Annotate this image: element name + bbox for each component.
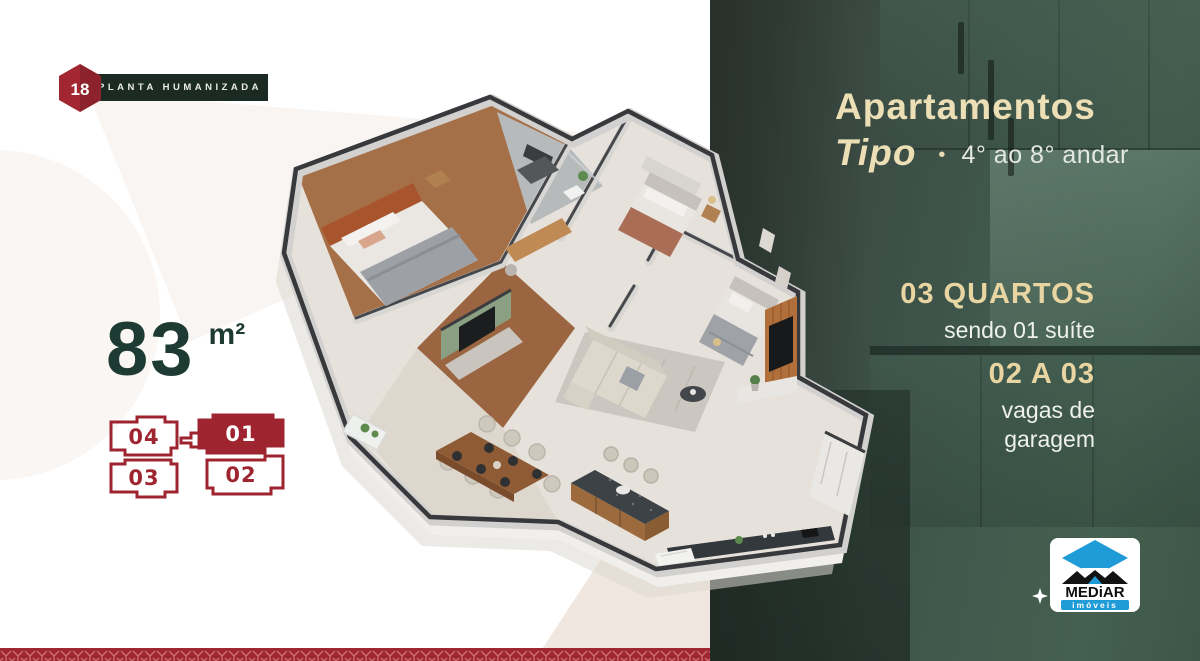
feature-bedrooms-headline: 03 QUARTOS bbox=[900, 278, 1095, 311]
feature-parking-headline: 02 A 03 bbox=[963, 358, 1095, 391]
logo-brand-text: MEDiAR bbox=[1065, 584, 1124, 601]
feature-parking-detail: vagas de garagem bbox=[963, 396, 1095, 454]
unit-03-label: 03 bbox=[128, 466, 159, 490]
panel-title: Apartamentos Tipo • 4° ao 8° andar bbox=[835, 88, 1129, 174]
badge-label-bar: PLANTA HUMANIZADA bbox=[92, 74, 268, 101]
sparkle-icon bbox=[1032, 588, 1048, 604]
unit-connector bbox=[181, 433, 199, 447]
feature-bedrooms-detail: sendo 01 suíte bbox=[900, 316, 1095, 345]
bullet-separator: • bbox=[938, 144, 945, 167]
marketing-slide: Apartamentos Tipo • 4° ao 8° andar 03 QU… bbox=[0, 0, 1200, 661]
floor-plan-3d-render bbox=[265, 80, 905, 615]
mediar-logo: MEDiAR imóveis bbox=[1050, 538, 1140, 612]
unit-01-label: 01 bbox=[225, 422, 256, 446]
badge-label: PLANTA HUMANIZADA bbox=[98, 82, 262, 93]
floor-range-subtitle: 4° ao 8° andar bbox=[961, 141, 1128, 170]
area-value: 83 bbox=[106, 312, 195, 388]
unit-04-label: 04 bbox=[128, 425, 159, 449]
logo-tagline-text: imóveis bbox=[1072, 600, 1118, 610]
title-line1: Apartamentos bbox=[835, 88, 1129, 127]
feature-parking: 02 A 03 vagas de garagem bbox=[963, 358, 1095, 454]
pattern-fill bbox=[0, 648, 710, 661]
unit-02-label: 02 bbox=[225, 463, 256, 487]
badge-hexagon: 18 bbox=[58, 63, 104, 113]
title-line2: Tipo bbox=[835, 132, 916, 174]
bottom-pattern-strip bbox=[0, 648, 710, 661]
badge-number: 18 bbox=[71, 80, 90, 99]
area-unit: m² bbox=[209, 318, 246, 388]
area-label: 83 m² bbox=[106, 312, 245, 388]
feature-bedrooms: 03 QUARTOS sendo 01 suíte bbox=[900, 278, 1095, 345]
